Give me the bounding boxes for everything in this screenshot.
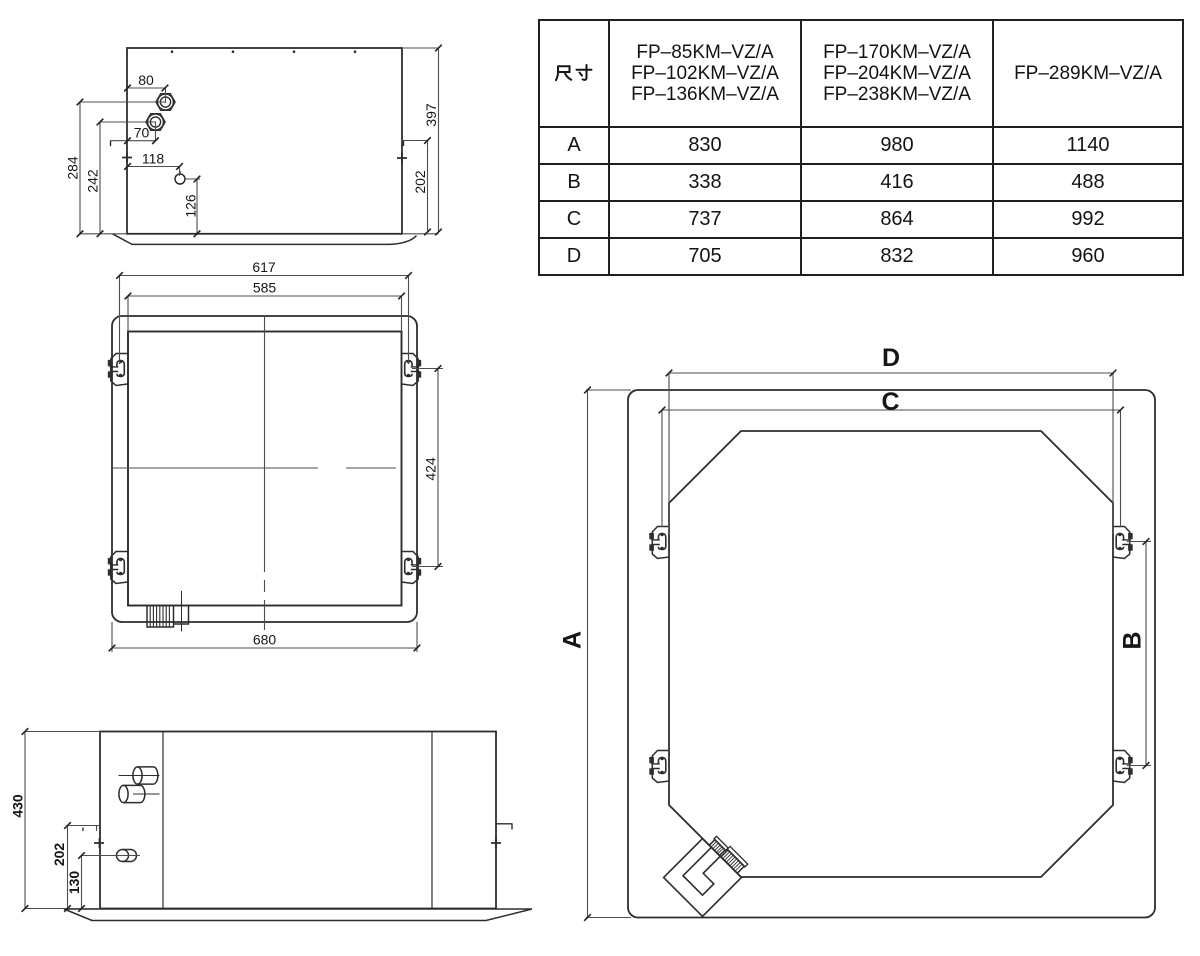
svg-text:118: 118	[142, 151, 165, 167]
svg-text:70: 70	[134, 125, 150, 141]
svg-text:430: 430	[10, 794, 26, 818]
svg-text:126: 126	[183, 194, 199, 218]
svg-text:202: 202	[412, 170, 428, 194]
svg-text:130: 130	[66, 871, 82, 895]
svg-text:B: B	[1119, 631, 1147, 649]
svg-text:680: 680	[253, 632, 277, 648]
svg-text:242: 242	[85, 169, 101, 193]
svg-text:A: A	[559, 631, 587, 649]
svg-text:397: 397	[423, 103, 439, 127]
svg-text:C: C	[881, 388, 899, 416]
svg-text:D: D	[882, 344, 900, 372]
svg-text:80: 80	[138, 72, 154, 88]
svg-text:424: 424	[423, 457, 439, 481]
svg-text:585: 585	[253, 280, 277, 296]
svg-text:617: 617	[252, 259, 276, 275]
svg-text:284: 284	[65, 156, 81, 180]
svg-text:202: 202	[51, 843, 67, 867]
